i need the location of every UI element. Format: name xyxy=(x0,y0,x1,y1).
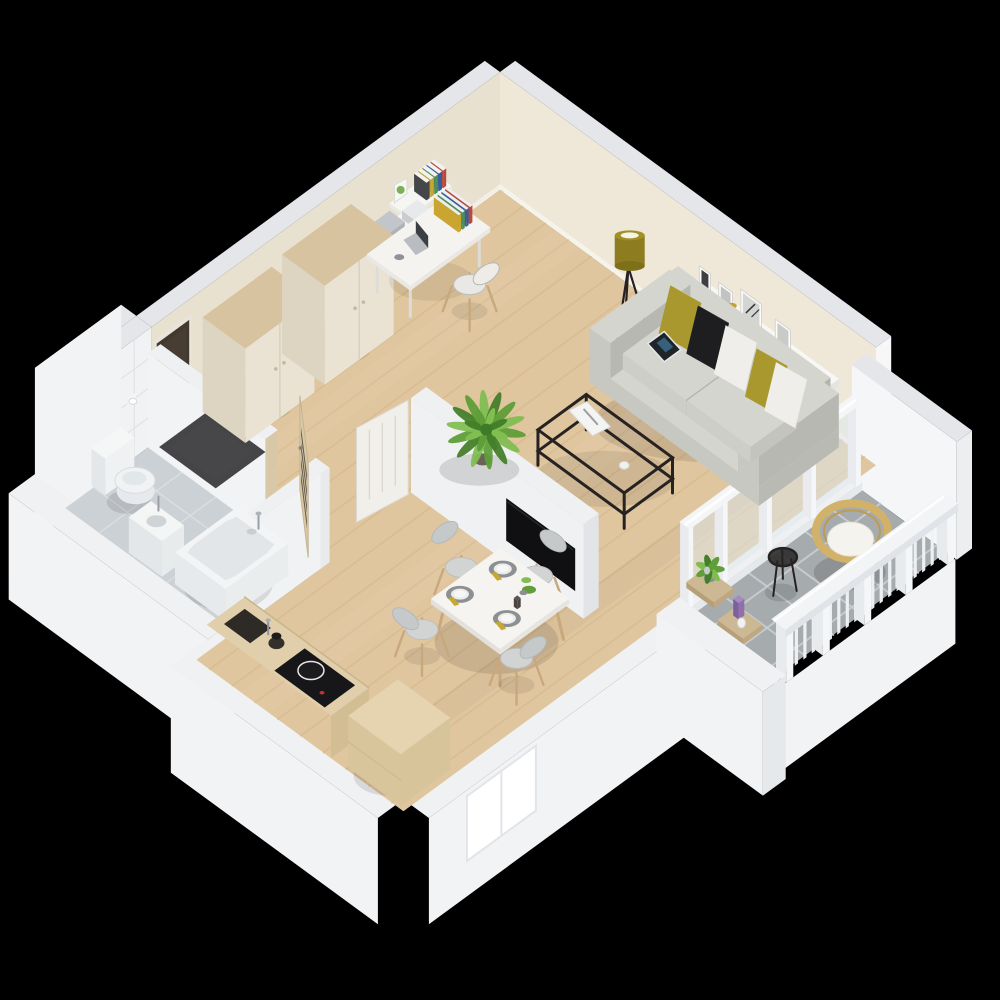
desk-wall-shelves-part xyxy=(439,171,442,191)
balcony-glazing-part xyxy=(688,525,693,610)
wardrobe-right-part xyxy=(353,306,357,310)
desk-part xyxy=(459,214,461,233)
desk-wall-shelves-part xyxy=(397,186,405,194)
apartment-3d-floor-plan xyxy=(0,0,1000,1000)
wardrobe-left-part xyxy=(274,367,278,371)
floor-lamp-part xyxy=(621,232,639,238)
floor-lamp-part xyxy=(615,261,645,271)
bathroom-door-open-part xyxy=(299,446,303,450)
balcony-glazing-part xyxy=(856,402,861,487)
desk-wall-shelves-part xyxy=(443,168,446,188)
dining-table-part xyxy=(497,565,509,572)
coffee-table-part xyxy=(619,461,629,469)
kitchen-counter-part xyxy=(271,633,281,640)
palm-plant-part xyxy=(480,424,492,436)
balcony-plant-stand-part xyxy=(738,618,746,628)
balcony-side-table-part xyxy=(782,551,783,579)
desk-part xyxy=(470,205,472,224)
desk-wall-shelves-part xyxy=(427,180,430,200)
balcony-side-table-part xyxy=(765,583,797,601)
desk-wall-shelves-part xyxy=(435,174,438,194)
balcony-glazing-part xyxy=(723,500,728,585)
toilet-part xyxy=(122,471,146,485)
toilet-paper-holder-part xyxy=(129,398,137,404)
partition-wall-part xyxy=(584,513,599,619)
dining-table-part xyxy=(501,615,513,622)
washbasin-part xyxy=(146,515,166,527)
floor-plan-screenshot xyxy=(0,0,1000,1000)
kitchen-counter-part xyxy=(266,618,271,622)
balcony-wall-south-part xyxy=(763,675,786,796)
kitchen-counter-part xyxy=(319,691,324,695)
wardrobe-left-part xyxy=(282,361,286,365)
desk-wall-shelves-part xyxy=(431,177,434,197)
dining-table-part xyxy=(519,590,527,595)
balcony-glazing-part xyxy=(680,522,688,610)
desk-part xyxy=(466,208,468,227)
balcony-plant-stand-part xyxy=(704,567,710,575)
bathtub-part xyxy=(247,529,257,535)
balcony-wall-north-part xyxy=(957,431,972,560)
dining-table-part xyxy=(521,577,531,583)
dining-table-part xyxy=(454,590,466,597)
wardrobe-right-part xyxy=(362,300,366,304)
bathtub-part xyxy=(256,511,262,515)
desk-part xyxy=(394,254,404,260)
desk-part xyxy=(462,211,464,230)
